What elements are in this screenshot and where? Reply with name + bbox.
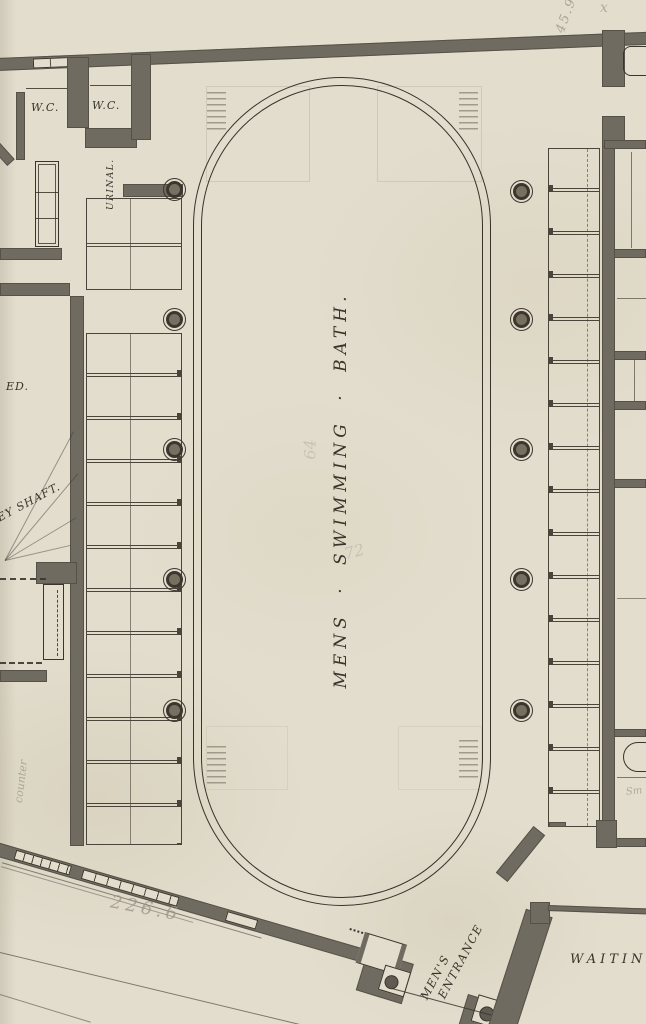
small-room-note: Sm — [625, 785, 642, 798]
urinal-fixture — [35, 161, 59, 247]
dimension-note-top-right: 45.9 — [553, 0, 580, 35]
room-line — [617, 298, 646, 299]
wall-window — [33, 57, 69, 68]
urinal-divider — [36, 218, 58, 219]
wc-shelf-line — [26, 88, 67, 89]
column-dot — [163, 699, 186, 722]
x-mark-note: x — [600, 0, 608, 16]
wall-right-room — [614, 249, 646, 258]
room-line — [634, 360, 635, 401]
wall-top — [0, 32, 646, 71]
column-dot — [163, 308, 186, 331]
wall-right-pier — [602, 30, 625, 87]
room-line — [617, 598, 646, 599]
wall-ed-top — [0, 283, 70, 296]
cubicle-strip-right — [548, 148, 600, 827]
wall-urinal-bottom — [0, 248, 62, 260]
wall-wc-right — [131, 54, 151, 140]
wall-wc-left — [16, 92, 25, 160]
wall-chunk — [36, 562, 77, 584]
column-dot — [163, 568, 186, 591]
wall-diagonal-stub — [496, 826, 545, 882]
column-dot — [163, 438, 186, 461]
ed-label: ED. — [6, 380, 29, 393]
mens-entrance-label: MEN'S ENTRANCE — [417, 915, 486, 1010]
wall-br-pier — [596, 820, 617, 848]
pavement-line — [0, 952, 306, 1024]
dashed-outline — [57, 590, 58, 656]
wc-left-label: W.C. — [31, 101, 59, 114]
wall-right-room — [615, 838, 646, 847]
wall-right-room — [604, 140, 646, 149]
wall-entrance-right — [487, 909, 552, 1024]
column-dot — [510, 699, 533, 722]
cubicle-strip-left-upper — [86, 198, 182, 290]
cubicle-mid-line — [130, 334, 131, 844]
wall-waiting-top — [548, 905, 646, 914]
pavement-line — [0, 994, 91, 1023]
wc-right-label: W.C. — [92, 99, 120, 112]
room-line — [617, 777, 646, 778]
dashed-outline — [0, 578, 46, 580]
waiting-label: WAITING — [570, 952, 646, 967]
floor-plan: W.C. W.C. URINAL. ED. EY SHAFT. counter — [0, 0, 646, 1024]
wall-right-room — [614, 401, 646, 410]
wall-wc-sub — [85, 128, 137, 148]
dashed-outline — [0, 662, 42, 664]
column-dot — [510, 180, 533, 203]
bath-fixture — [623, 46, 646, 76]
pool-steps — [459, 92, 478, 132]
counter-note: counter — [12, 759, 30, 803]
basin-fixture — [623, 742, 646, 772]
wall-right-room — [614, 729, 646, 737]
urinal-divider — [36, 192, 58, 193]
cubicle-door-ticks — [548, 149, 553, 826]
wc-shelf-line — [90, 85, 131, 86]
column-dot — [510, 568, 533, 591]
cubicle-partition — [87, 243, 181, 244]
wall-counter-top — [0, 670, 47, 682]
cubicle-partition — [87, 246, 181, 247]
pool-steps — [459, 740, 478, 780]
pool-steps — [207, 746, 226, 786]
cubicle-mid-line — [587, 149, 588, 826]
cubicle-mid-line — [130, 199, 131, 289]
wall-stub — [0, 134, 15, 166]
pool-label: MENS · SWIMMING · BATH. — [331, 292, 351, 689]
tank-step — [43, 584, 64, 660]
urinal-fixture-inner — [38, 164, 56, 244]
column-dot — [510, 438, 533, 461]
wall-window-band — [225, 911, 259, 930]
column-dot — [163, 178, 186, 201]
column-dot — [510, 308, 533, 331]
room-line — [631, 152, 632, 248]
wall-right-room — [614, 479, 646, 488]
pool-pencil-note: 64 — [301, 439, 320, 459]
wall-wc-mid — [67, 57, 89, 128]
window-mullion — [50, 59, 51, 67]
wall-right-room — [614, 351, 646, 360]
wall-stub — [549, 822, 566, 827]
pool-steps — [207, 92, 226, 132]
